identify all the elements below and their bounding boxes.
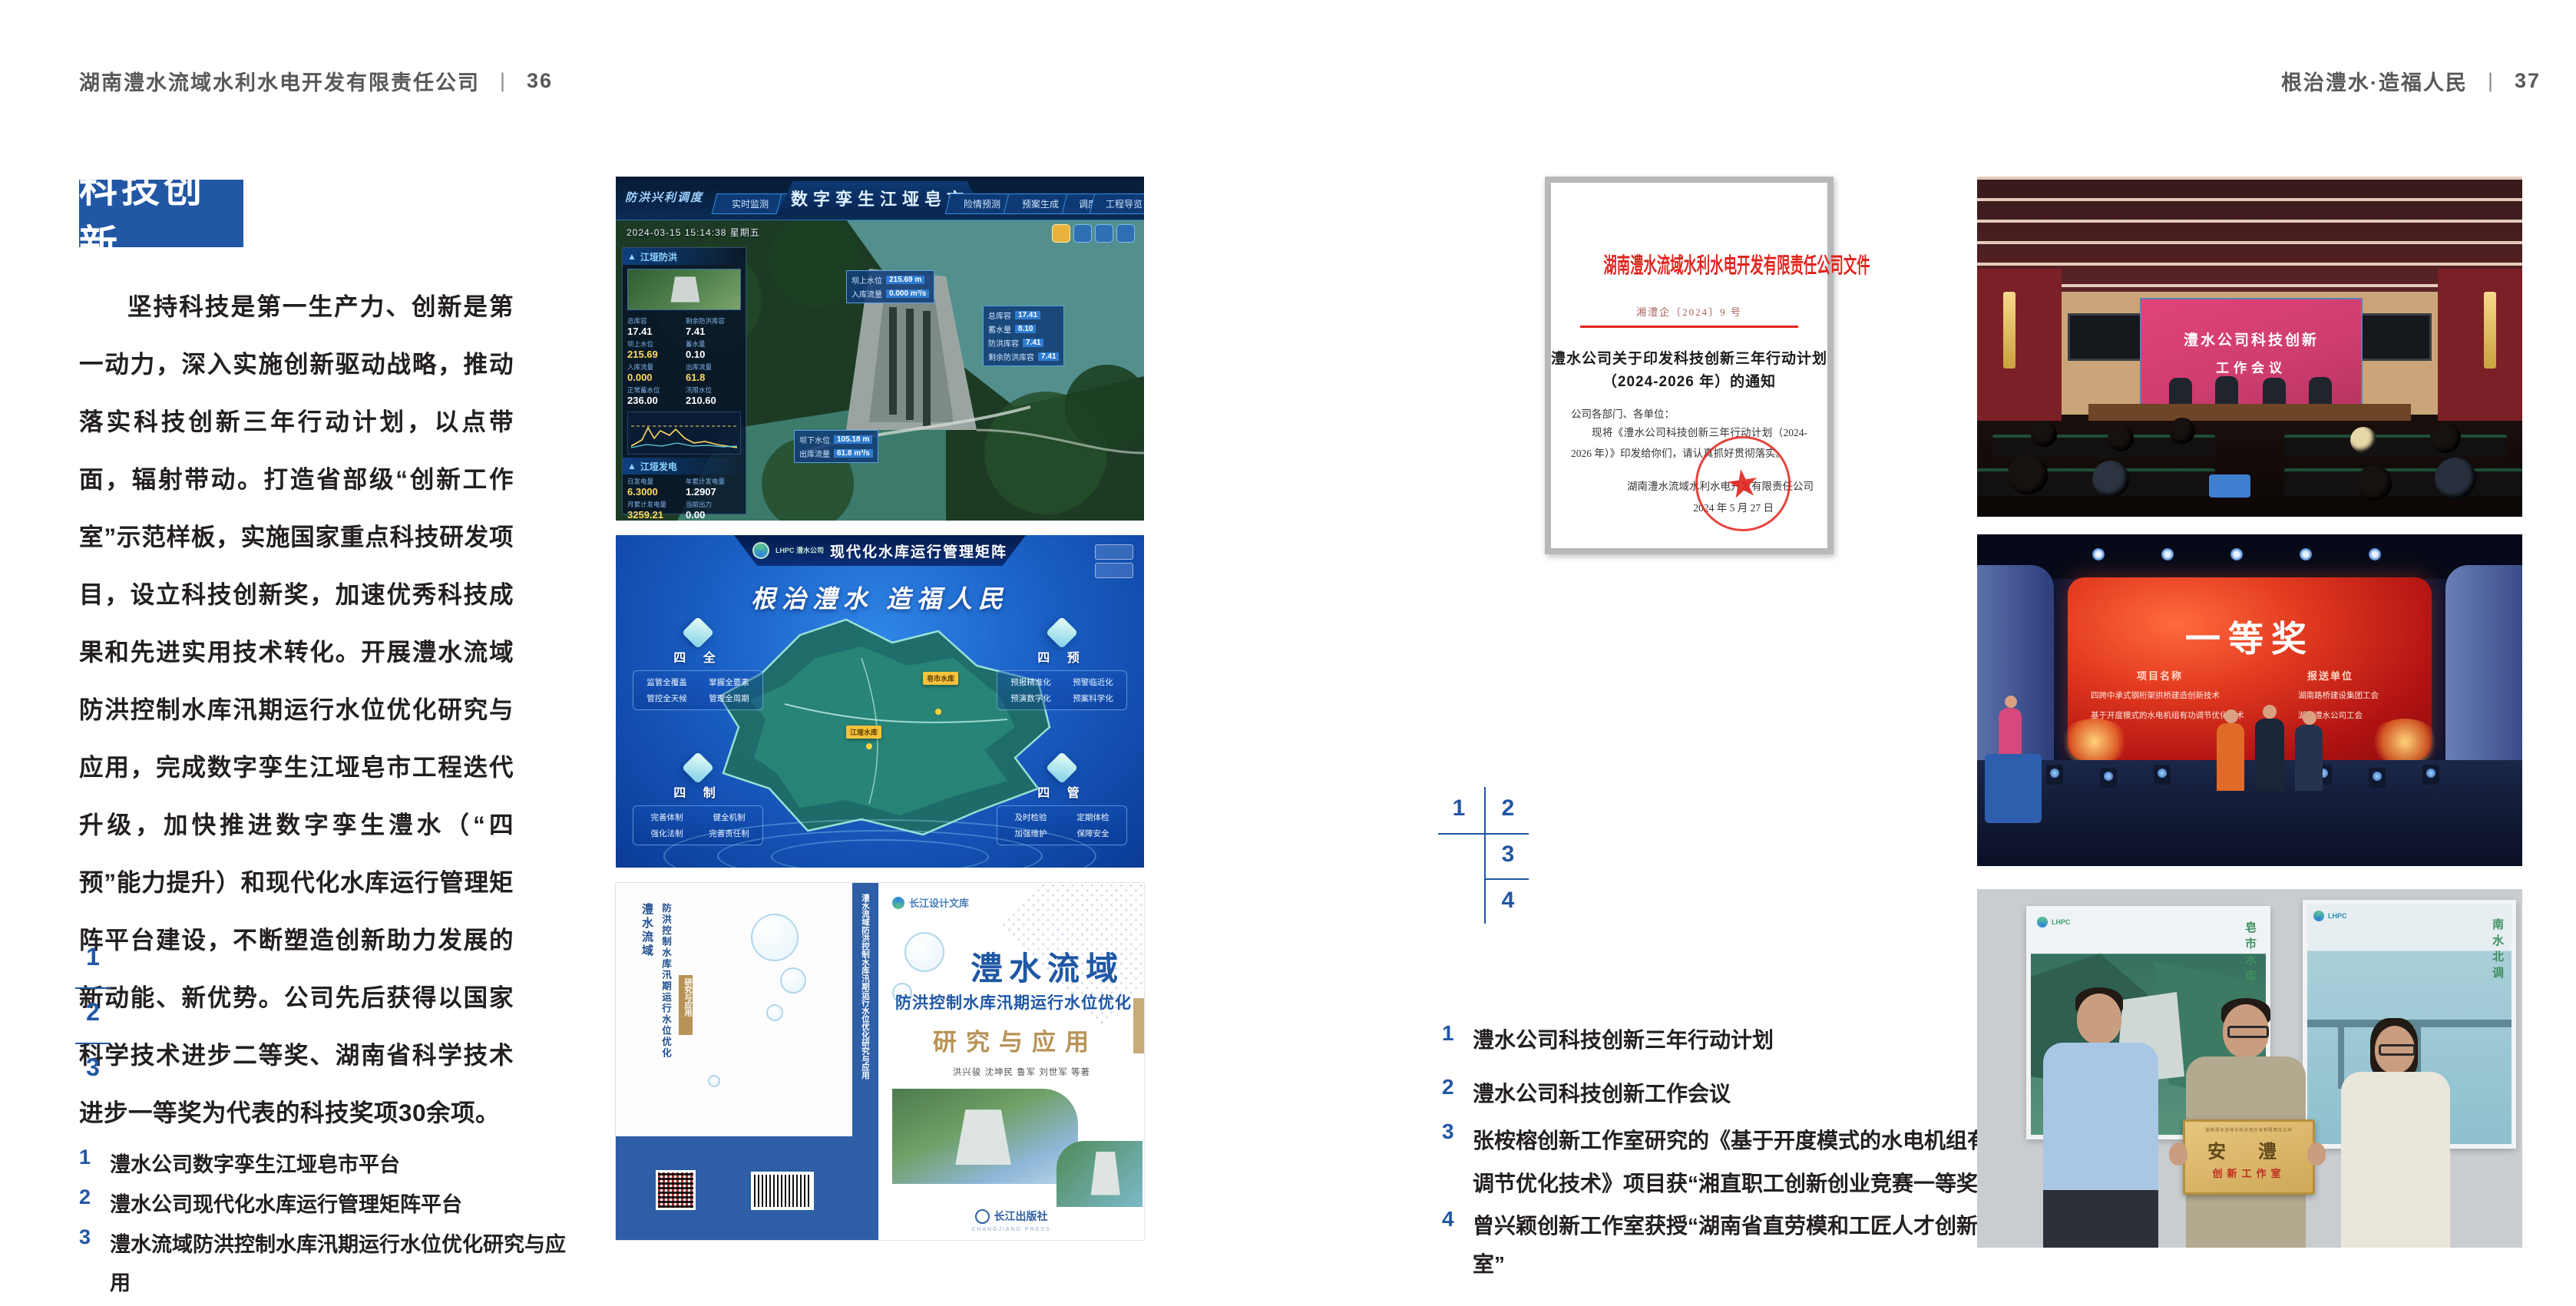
presidium-person — [2263, 378, 2286, 405]
header-right: 根治澧水·造福人民 | 37 — [2281, 66, 2541, 96]
power-stats: 日发电量6.3000 年累计发电量1.2907 月累计发电量3259.21 当前… — [623, 474, 746, 521]
glasses-icon — [2379, 1044, 2416, 1056]
book-authors: 洪兴骏 沈坤民 鲁军 刘世军 等著 — [953, 1066, 1090, 1078]
screen-glow — [2370, 719, 2439, 765]
toggle-button[interactable] — [1095, 544, 1133, 560]
attendee-head — [2430, 422, 2461, 453]
document-red-rule — [1580, 326, 1798, 328]
bubble-decoration — [708, 1075, 720, 1087]
document-number: 湘澧企〔2024〕9 号 — [1551, 304, 1827, 319]
figure-group-photo: LHPC 皂市水库 LHPC 南水北调 — [1977, 889, 2522, 1248]
glasses-icon — [2227, 1026, 2269, 1038]
project-row: 基于开度模式的水电机组有功调节优化技术 — [2091, 709, 2244, 721]
caption-row: 2 澧水公司现代化水库运行管理矩阵平台 — [79, 1185, 570, 1224]
upstream-tooltip: 坝上水位215.69 m 入库流量0.000 m³/s — [846, 270, 934, 303]
publisher-name: 长江出版社 — [994, 1208, 1048, 1224]
project-row: 四跨中承式钢桁架拱桥建造创新技术 — [2091, 689, 2220, 701]
lhpc-logo-icon — [2037, 917, 2048, 927]
map-label-zaoshi[interactable]: 皂市水库 — [923, 672, 958, 685]
wall-tv — [2356, 313, 2432, 361]
panel-power-header: ▲ 江垭发电 — [623, 458, 746, 474]
plaque-title: 安 澧 — [2185, 1136, 2313, 1163]
caption-number: 4 — [1442, 1207, 1473, 1232]
dashboard-brand: 防洪兴利调度 — [625, 189, 703, 205]
presidium-person — [2215, 376, 2238, 404]
monitor-icon — [682, 617, 714, 649]
caption-text: 澧水流域防洪控制水库汛期运行水位优化研究与应用 — [110, 1225, 586, 1302]
caption-text: 张桉榕创新工作室研究的《基于开度模式的水电机组有功调节优化技术》项目获“湘直职工… — [1473, 1119, 2025, 1205]
caption-row: 4 曾兴颖创新工作室获授“湖南省直劳模和工匠人才创新工作室” — [1442, 1207, 2025, 1284]
section-title: 科技创新 — [79, 158, 243, 269]
back-title-main: 澧水流域 — [639, 903, 655, 1133]
attendee-head — [2092, 461, 2129, 498]
poster-right-caption: 南水北调 — [2489, 918, 2505, 983]
panel-siyu: 四 预 预报精准化预警临近化 预演数字化预案科学化 — [997, 621, 1127, 710]
figure-number-2: 2 — [1493, 795, 1523, 822]
magazine-spread: 湖南澧水流域水利水电开发有限责任公司 | 36 根治澧水·造福人民 | 37 科… — [0, 0, 2576, 1306]
document-salutation: 公司各部门、各单位： — [1571, 404, 1675, 425]
maintenance-icon — [1046, 752, 1078, 784]
floor-light — [2100, 768, 2117, 788]
header-divider: | — [500, 69, 507, 93]
desk-row — [2284, 435, 2507, 458]
panel-flood-header: ▲ 江垭防洪 — [623, 248, 746, 265]
poster-left-caption: 皂市水库 — [2242, 921, 2258, 986]
presidium-person — [2309, 377, 2332, 405]
plaque-company: 湖南澧水流域水利水电开发有限责任公司 — [2191, 1126, 2306, 1132]
book-front-cover: 长江设计文库 澧水流域 防洪控制水库汛期运行水位优化 研究与应用 洪兴骏 沈坤民… — [878, 883, 1144, 1240]
caption-row: 3 澧水流域防洪控制水库汛期运行水位优化研究与应用 — [79, 1225, 586, 1302]
figure-number-2: 2 — [75, 998, 111, 1027]
floor-light — [2422, 765, 2439, 785]
host-head — [2005, 696, 2017, 708]
attendee-head — [2108, 425, 2134, 451]
floor-light — [2369, 768, 2386, 788]
downstream-tooltip: 坝下水位105.18 m 出库流量61.8 m³/s — [794, 430, 878, 463]
caption-number: 2 — [1442, 1075, 1473, 1099]
stage-ceiling — [1977, 534, 2522, 579]
floor-light — [2154, 765, 2171, 785]
attendee-head — [2356, 465, 2392, 501]
alert-icon[interactable] — [1116, 224, 1135, 243]
qr-code — [656, 1170, 696, 1210]
changjiang-design-icon — [892, 897, 904, 909]
lhpc-logo-text: LHPC 澧水公司 — [775, 547, 824, 554]
figure-official-document: 湖南澧水流域水利水电开发有限责任公司文件 湘澧企〔2024〕9 号 澧水公司关于… — [1545, 177, 1834, 554]
bridge-pier — [2338, 1027, 2344, 1089]
back-tail-block: 研究与应用 — [679, 975, 693, 1035]
layers-icon[interactable] — [1073, 224, 1092, 243]
figure-meeting-photo: 澧水公司科技创新 工作会议 — [1977, 177, 2522, 517]
page-number-right: 37 — [2515, 69, 2541, 93]
flood-stats: 总库容17.41 剩余防洪库容7.41 坝上水位215.69 蓄水量0.10 入… — [623, 314, 746, 408]
awardee-navy — [2295, 725, 2323, 791]
institution-icon — [682, 752, 714, 784]
series-logo: 长江设计文库 — [892, 895, 969, 910]
lhpc-logo-icon — [752, 542, 769, 559]
back-title-sub: 防洪控制水库汛期运行水位优化 — [659, 903, 673, 1133]
lhpc-logo: LHPC — [2313, 911, 2347, 921]
wall-lamp — [2003, 292, 2015, 369]
column-header-unit: 报送单位 — [2307, 668, 2353, 683]
bubble-decoration — [780, 967, 806, 994]
dam-photo-small — [1057, 1141, 1143, 1207]
caption-row: 1 澧水公司数字孪生江垭皂市平台 — [79, 1146, 570, 1184]
forecast-icon — [1046, 617, 1078, 649]
figure-number-rule — [75, 987, 111, 989]
meeting-screen-line2: 工作会议 — [2141, 357, 2361, 376]
awardee-head — [2303, 711, 2316, 725]
screen-glow — [2060, 719, 2129, 765]
award-screen: 一等奖 项目名称 报送单位 四跨中承式钢桁架拱桥建造创新技术 基于开度模式的水电… — [2068, 577, 2432, 760]
column-header-project: 项目名称 — [2137, 668, 2183, 683]
unit-row: 湖南路桥建设集团工会 — [2298, 689, 2379, 701]
figure-number-divider — [1438, 833, 1529, 835]
figure-number-4: 4 — [1493, 888, 1523, 914]
back-bottom-band — [616, 1136, 852, 1240]
document-title-line1: 澧水公司关于印发科技创新三年行动计划 — [1551, 347, 1827, 368]
hand — [2169, 1142, 2187, 1165]
presenter-head — [2263, 705, 2277, 719]
panel-siquan: 四 全 监管全覆盖掌握全要素 管控全天候管理全周期 — [633, 621, 763, 710]
document-title-line2: （2024-2026 年）的通知 — [1551, 370, 1827, 391]
matrix-header: LHPC 澧水公司 现代化水库运行管理矩阵 — [734, 535, 1026, 566]
lhpc-logo: LHPC — [2037, 917, 2071, 927]
caption-text: 澧水公司现代化水库运行管理矩阵平台 — [110, 1185, 570, 1224]
header-left: 湖南澧水流域水利水电开发有限责任公司 | 36 — [79, 66, 553, 96]
plaque-subtitle: 创新工作室 — [2185, 1165, 2313, 1180]
attendee-head — [2435, 458, 2476, 499]
figure-number-divider — [1484, 878, 1529, 880]
figure-number-divider — [1484, 787, 1486, 924]
water-level-chart — [627, 412, 741, 455]
awardee-head — [2224, 709, 2238, 723]
dam-photo — [892, 1089, 1078, 1184]
figure-matrix-platform: LHPC 澧水公司 现代化水库运行管理矩阵 根治澧水 造福人民 皂市水库 江垭水… — [616, 535, 1144, 868]
wall-tv — [2068, 313, 2143, 361]
spine-title: 澧水流域防洪控制水库汛期运行水位优化研究与应用 — [860, 894, 871, 1185]
figure-number-1: 1 — [1443, 795, 1474, 822]
audience-area — [1977, 421, 2522, 517]
caption-number: 3 — [79, 1225, 110, 1249]
caption-number: 1 — [1442, 1021, 1473, 1046]
stage-light — [2161, 548, 2174, 560]
spread-slogan: 根治澧水·造福人民 — [2281, 66, 2468, 96]
dam-icon — [670, 276, 699, 302]
document-red-header: 湖南澧水流域水利水电开发有限责任公司文件 — [1603, 249, 1774, 279]
figure-number-3: 3 — [75, 1053, 111, 1082]
expand-button[interactable] — [1095, 563, 1133, 578]
caption-text: 曾兴颖创新工作室获授“湖南省直劳模和工匠人才创新工作室” — [1473, 1207, 2025, 1284]
book-title-sub: 防洪控制水库汛期运行水位优化 — [895, 990, 1132, 1013]
stage-light — [2300, 548, 2312, 560]
caption-row: 2 澧水公司科技创新工作会议 — [1442, 1075, 2018, 1113]
seal-star-icon: ★ — [1723, 462, 1762, 505]
stage-light — [2369, 548, 2381, 560]
figure-number-3: 3 — [1493, 841, 1523, 868]
bubble-decoration — [766, 1004, 783, 1021]
bubble-decoration — [904, 932, 944, 972]
caption-text: 澧水公司科技创新三年行动计划 — [1473, 1021, 2018, 1060]
host-podium — [1985, 754, 2042, 823]
left-wall — [1977, 269, 2062, 422]
attendee-head — [2031, 421, 2057, 447]
right-wall — [2438, 269, 2522, 422]
dashboard-sidebar: ▲ 江垭防洪 总库容17.41 剩余防洪库容7.41 坝上水位215.69 蓄水… — [622, 247, 746, 514]
figure-number-1: 1 — [75, 943, 111, 971]
dashboard-datetime: 2024-03-15 15:14:38 星期五 — [627, 226, 760, 239]
meeting-screen-line1: 澧水公司科技创新 — [2141, 329, 2361, 349]
attendee-head — [2169, 418, 2195, 444]
award-title: 一等奖 — [2068, 611, 2432, 662]
tab-project-tour[interactable]: 工程导览 — [1090, 193, 1144, 214]
book-title-tail: 研究与应用 — [933, 1023, 1098, 1057]
caption-text: 澧水公司数字孪生江垭皂市平台 — [110, 1146, 570, 1184]
bubble-decoration — [751, 914, 799, 961]
figure-award-stage-photo: 一等奖 项目名称 报送单位 四跨中承式钢桁架拱桥建造创新技术 基于开度模式的水电… — [1977, 534, 2522, 866]
awardee-orange — [2217, 723, 2244, 791]
publisher-en: CHANGJIANG PRESS — [878, 1227, 1144, 1232]
dam-thumbnail — [627, 269, 741, 310]
figure-digital-twin-dashboard: 防洪兴利调度 实时监测 洪水预报 防洪预警 数字孪生江垭皂市 险情预测 预案生成… — [616, 177, 1144, 521]
book-spine: 澧水流域防洪控制水库汛期运行水位优化研究与应用 — [852, 883, 878, 1240]
body-paragraph: 坚持科技是第一生产力、创新是第一动力，深入实施创新驱动战略，推动落实科技创新三年… — [79, 278, 514, 1142]
figure-number-rule — [75, 1043, 111, 1044]
matrix-title: 现代化水库运行管理矩阵 — [830, 541, 1007, 561]
locate-icon[interactable] — [1095, 224, 1113, 243]
desk-row — [2284, 468, 2522, 496]
page-number-left: 36 — [527, 69, 553, 93]
gold-edge-block — [1133, 998, 1144, 1053]
hand — [2307, 1142, 2326, 1165]
caption-row: 3 张桉榕创新工作室研究的《基于开度模式的水电机组有功调节优化技术》项目获“湘直… — [1442, 1119, 2025, 1205]
section-title-box: 科技创新 — [79, 180, 243, 247]
person-top-cream — [2341, 1072, 2450, 1248]
innovation-studio-plaque: 湖南澧水流域水利水电开发有限责任公司 安 澧 创新工作室 — [2183, 1119, 2315, 1195]
wall-lamp — [2484, 292, 2496, 369]
tissue-box — [2209, 474, 2250, 498]
user-icon[interactable] — [1052, 224, 1070, 243]
caption-row: 1 澧水公司科技创新三年行动计划 — [1442, 1021, 2018, 1060]
lhpc-logo-icon — [2313, 911, 2324, 921]
person-trousers — [2043, 1190, 2158, 1248]
presenter-suit — [2255, 719, 2284, 791]
map-label-jiangya[interactable]: 江垭水库 — [846, 726, 881, 739]
stage-light — [2092, 548, 2105, 560]
book-title-main: 澧水流域 — [971, 943, 1124, 990]
capacity-tooltip: 总库容17.41 蓄水量8.10 防洪库容7.41 剩余防洪库容7.41 — [983, 306, 1064, 366]
attendee-head — [2350, 427, 2376, 453]
floor-light — [2046, 765, 2063, 785]
company-name: 湖南澧水流域水利水电开发有限责任公司 — [79, 66, 480, 96]
header-divider: | — [2488, 69, 2495, 93]
stage-light — [2230, 548, 2243, 560]
barcode — [751, 1172, 814, 1210]
series-name: 长江设计文库 — [909, 895, 969, 910]
person-head — [2077, 994, 2121, 1044]
matrix-slogan: 根治澧水 造福人民 — [616, 580, 1144, 615]
presidium-person — [2169, 378, 2192, 405]
dam-icon — [955, 1109, 1011, 1165]
publisher-logo-icon — [975, 1209, 990, 1224]
attendee-head — [2008, 455, 2048, 494]
book-back-cover: 澧水流域 防洪控制水库汛期运行水位优化 研究与应用 — [616, 883, 852, 1240]
figure-book-cover: 澧水流域 防洪控制水库汛期运行水位优化 研究与应用 澧水流域防洪控制水库汛期运行… — [616, 883, 1144, 1240]
caption-number: 2 — [79, 1185, 110, 1209]
dashboard-topbar: 防洪兴利调度 实时监测 洪水预报 防洪预警 数字孪生江垭皂市 险情预测 预案生成… — [616, 177, 1144, 220]
caption-number: 3 — [1442, 1119, 1473, 1144]
person-shirt-blue — [2043, 1043, 2158, 1196]
caption-number: 1 — [79, 1146, 110, 1169]
caption-text: 澧水公司科技创新工作会议 — [1473, 1075, 2018, 1113]
publisher-mark: 长江出版社 — [878, 1208, 1144, 1224]
dam-icon — [1091, 1152, 1120, 1195]
